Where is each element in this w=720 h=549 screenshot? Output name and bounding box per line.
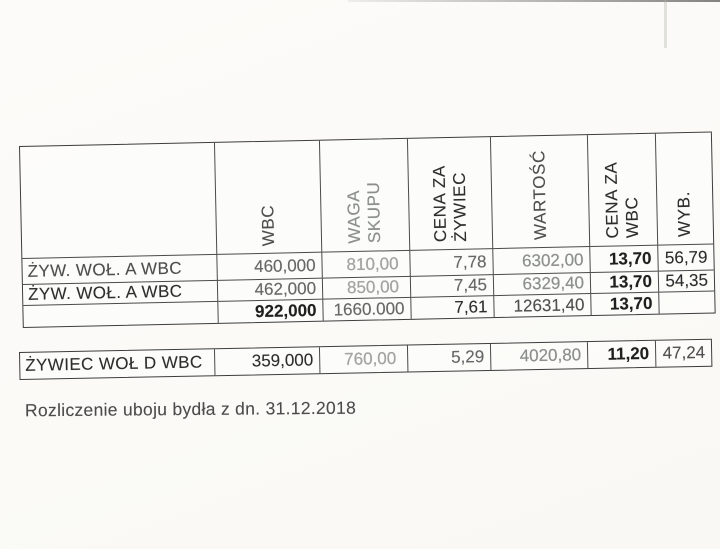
scan-streak-artifact xyxy=(664,0,667,48)
summary-cell-label: ŻYWIEC WOŁ D WBC xyxy=(20,349,215,379)
column-header-cena-za-wbc: CENA ZA WBC xyxy=(588,134,658,247)
totals-cell-wartosc: 12631,40 xyxy=(494,294,591,317)
summary-cell-waga-skupu: 760,00 xyxy=(320,346,408,374)
totals-cell-cena-wbc: 13,70 xyxy=(591,293,659,315)
scanned-document-page: WBC WAGA SKUPU CENA ZA ŻYWIEC WARTOŚĆ CE… xyxy=(0,0,720,549)
row1-cell-cena-wbc: 13,70 xyxy=(590,246,659,273)
totals-cell-wbc: 922,000 xyxy=(218,300,323,323)
column-header-wyb-text: WYB. xyxy=(675,191,696,237)
row1-cell-cena-zywiec: 7,78 xyxy=(410,249,494,277)
row2-cell-wbc: 462,000 xyxy=(218,279,323,302)
row2-cell-wartosc: 6329,40 xyxy=(494,273,591,296)
summary-cell-wyb: 47,24 xyxy=(656,340,711,367)
column-header-wyb: WYB. xyxy=(656,133,713,246)
row1-cell-label: ŻYW. WOŁ. A WBC xyxy=(22,255,218,285)
totals-cell-wyb xyxy=(659,291,714,313)
summary-cell-wbc: 359,000 xyxy=(215,347,320,375)
settlement-table: WBC WAGA SKUPU CENA ZA ŻYWIEC WARTOŚĆ CE… xyxy=(19,131,716,327)
row2-cell-cena-zywiec: 7,45 xyxy=(411,275,494,298)
row2-cell-cena-wbc: 13,70 xyxy=(591,272,659,294)
column-header-cena-za-zywiec-text: CENA ZA ŻYWIEC xyxy=(429,165,471,243)
column-header-waga-skupu: WAGA SKUPU xyxy=(320,139,410,253)
row1-cell-waga-skupu: 810,00 xyxy=(322,251,411,279)
column-header-cena-za-wbc-text: CENA ZA WBC xyxy=(602,161,644,239)
column-header-wbc-text: WBC xyxy=(258,204,279,246)
column-header-wartosc-text: WARTOŚĆ xyxy=(529,150,551,240)
column-header-waga-skupu-text: WAGA SKUPU xyxy=(344,182,385,244)
totals-cell-waga-skupu: 1660.000 xyxy=(323,298,411,321)
column-header-cena-za-zywiec: CENA ZA ŻYWIEC xyxy=(408,137,493,251)
column-header-label xyxy=(20,143,217,259)
column-header-wbc: WBC xyxy=(215,141,322,255)
totals-cell-label xyxy=(23,302,218,327)
row2-cell-wyb: 54,35 xyxy=(659,270,714,292)
settlement-caption: Rozliczenie uboju bydła z dn. 31.12.2018 xyxy=(25,398,356,422)
row1-cell-wartosc: 6302,00 xyxy=(493,247,591,275)
column-header-wartosc: WARTOŚĆ xyxy=(491,135,590,249)
summary-cell-cena-wbc: 11,20 xyxy=(588,341,656,368)
summary-cell-cena-zywiec: 5,29 xyxy=(408,344,491,372)
summary-cell-wartosc: 4020,80 xyxy=(491,342,588,370)
row1-cell-wyb: 56,79 xyxy=(658,244,714,271)
totals-cell-cena-zywiec: 7,61 xyxy=(411,296,494,319)
row1-cell-wbc: 460,000 xyxy=(217,253,323,281)
row2-cell-waga-skupu: 850,00 xyxy=(323,277,411,300)
summary-row-table: ŻYWIEC WOŁ D WBC 359,000 760,00 5,29 402… xyxy=(19,339,712,380)
